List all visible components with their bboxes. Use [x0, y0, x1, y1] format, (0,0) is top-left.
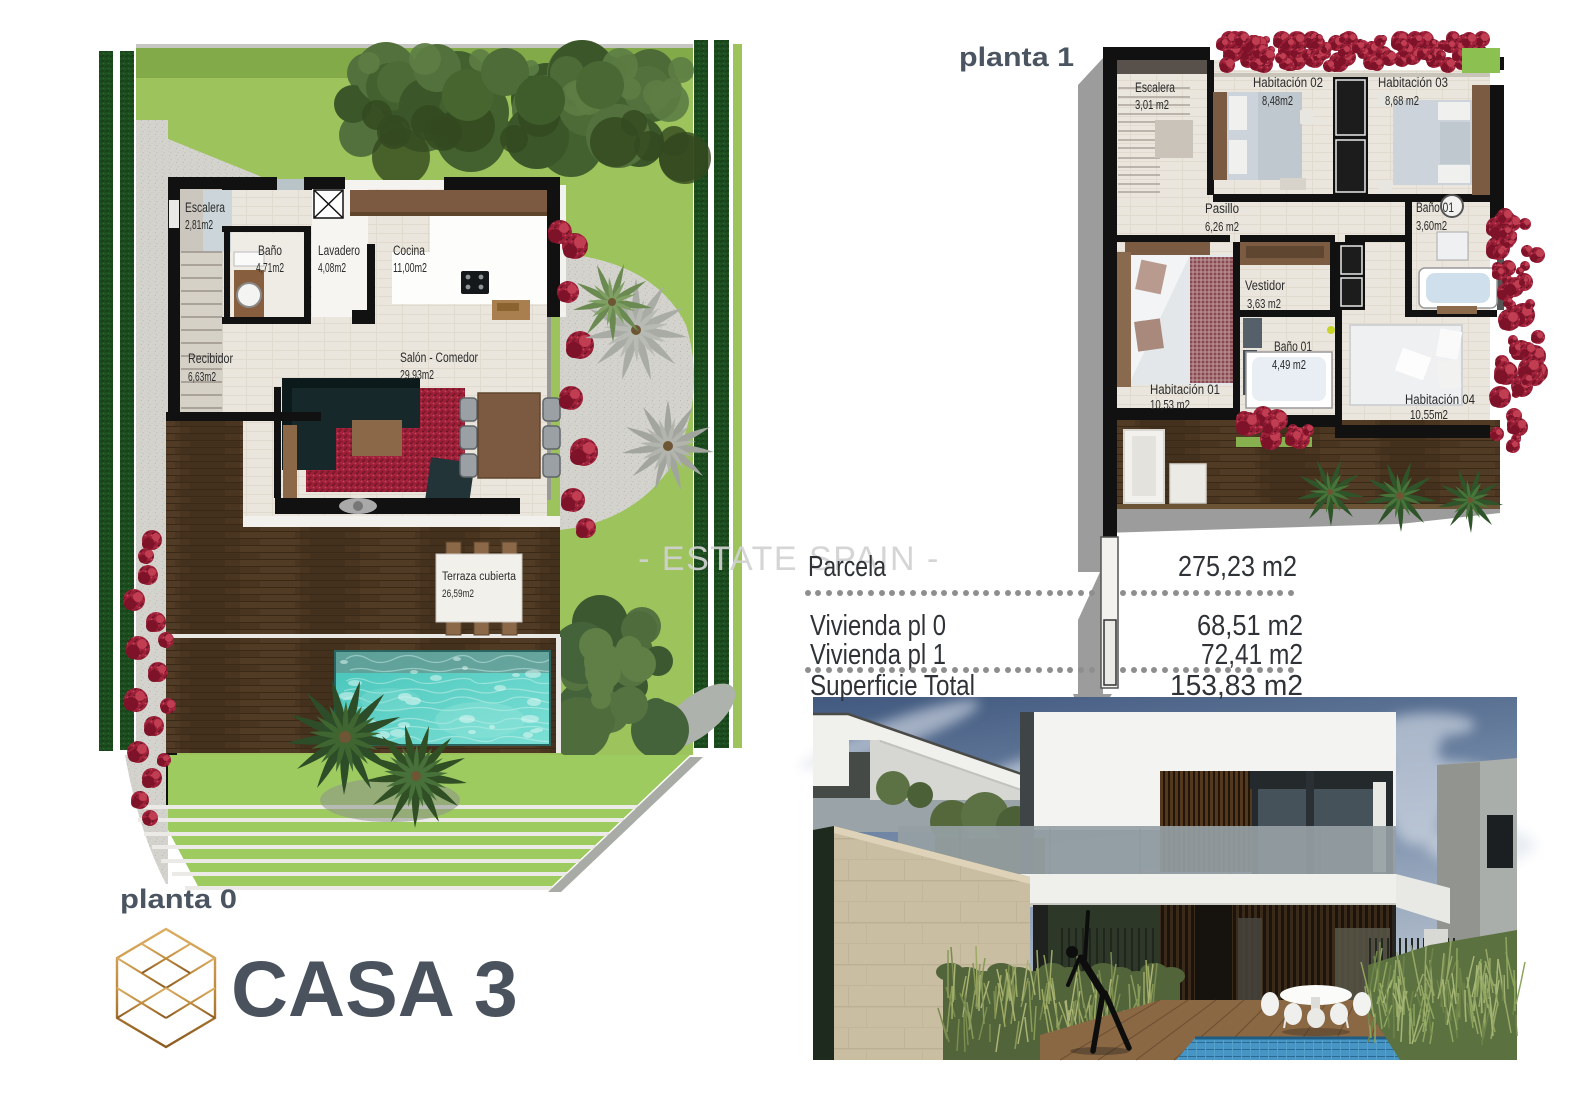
svg-text:Vivienda pl 0: Vivienda pl 0 — [810, 610, 946, 642]
svg-text:2,81m2: 2,81m2 — [185, 218, 213, 232]
svg-text:Habitación 03: Habitación 03 — [1378, 75, 1448, 90]
svg-text:4,49 m2: 4,49 m2 — [1272, 358, 1306, 372]
svg-text:planta 1: planta 1 — [959, 42, 1074, 72]
svg-text:Habitación 02: Habitación 02 — [1253, 75, 1323, 90]
svg-text:Superficie Total: Superficie Total — [810, 670, 975, 702]
svg-text:4,71m2: 4,71m2 — [256, 261, 284, 275]
svg-text:3,63 m2: 3,63 m2 — [1247, 297, 1281, 311]
svg-text:3,01 m2: 3,01 m2 — [1135, 98, 1169, 112]
svg-text:153,83 m2: 153,83 m2 — [1170, 670, 1303, 702]
svg-text:Habitación 04: Habitación 04 — [1405, 392, 1475, 407]
svg-text:Vivienda pl 1: Vivienda pl 1 — [810, 639, 946, 671]
svg-text:72,41 m2: 72,41 m2 — [1201, 639, 1303, 671]
svg-text:Baño: Baño — [258, 243, 282, 258]
svg-text:26,59m2: 26,59m2 — [442, 588, 474, 600]
svg-text:Parcela: Parcela — [808, 551, 887, 583]
svg-text:3,60m2: 3,60m2 — [1416, 219, 1447, 233]
svg-text:10,55m2: 10,55m2 — [1410, 408, 1448, 422]
svg-text:Cocina: Cocina — [393, 243, 425, 258]
svg-text:4,08m2: 4,08m2 — [318, 261, 346, 275]
svg-text:Pasillo: Pasillo — [1205, 201, 1239, 216]
svg-text:275,23 m2: 275,23 m2 — [1178, 551, 1297, 583]
svg-text:8,68 m2: 8,68 m2 — [1385, 94, 1419, 108]
svg-text:Salón - Comedor: Salón - Comedor — [400, 350, 478, 365]
svg-text:8,48m2: 8,48m2 — [1262, 94, 1293, 108]
svg-text:Recibidor: Recibidor — [188, 351, 233, 366]
svg-text:Lavadero: Lavadero — [318, 243, 360, 258]
svg-text:68,51 m2: 68,51 m2 — [1197, 610, 1303, 642]
svg-text:Baño 01: Baño 01 — [1274, 339, 1312, 354]
svg-text:29,93m2: 29,93m2 — [400, 368, 434, 382]
svg-text:- ESTATE SPAIN -: - ESTATE SPAIN - — [638, 540, 940, 578]
svg-text:Vestidor: Vestidor — [1245, 278, 1285, 293]
svg-text:CASA 3: CASA 3 — [231, 944, 518, 1033]
svg-text:planta 0: planta 0 — [120, 884, 237, 914]
svg-text:Habitación 01: Habitación 01 — [1150, 382, 1220, 397]
svg-text:Escalera: Escalera — [1135, 80, 1175, 95]
svg-text:Escalera: Escalera — [185, 200, 225, 215]
svg-text:11,00m2: 11,00m2 — [393, 261, 427, 275]
svg-text:6,26 m2: 6,26 m2 — [1205, 220, 1239, 234]
svg-text:6,63m2: 6,63m2 — [188, 370, 216, 384]
svg-text:Baño 01: Baño 01 — [1416, 200, 1454, 215]
svg-text:10,53 m2: 10,53 m2 — [1150, 398, 1190, 412]
svg-text:Terraza cubierta: Terraza cubierta — [442, 571, 517, 583]
